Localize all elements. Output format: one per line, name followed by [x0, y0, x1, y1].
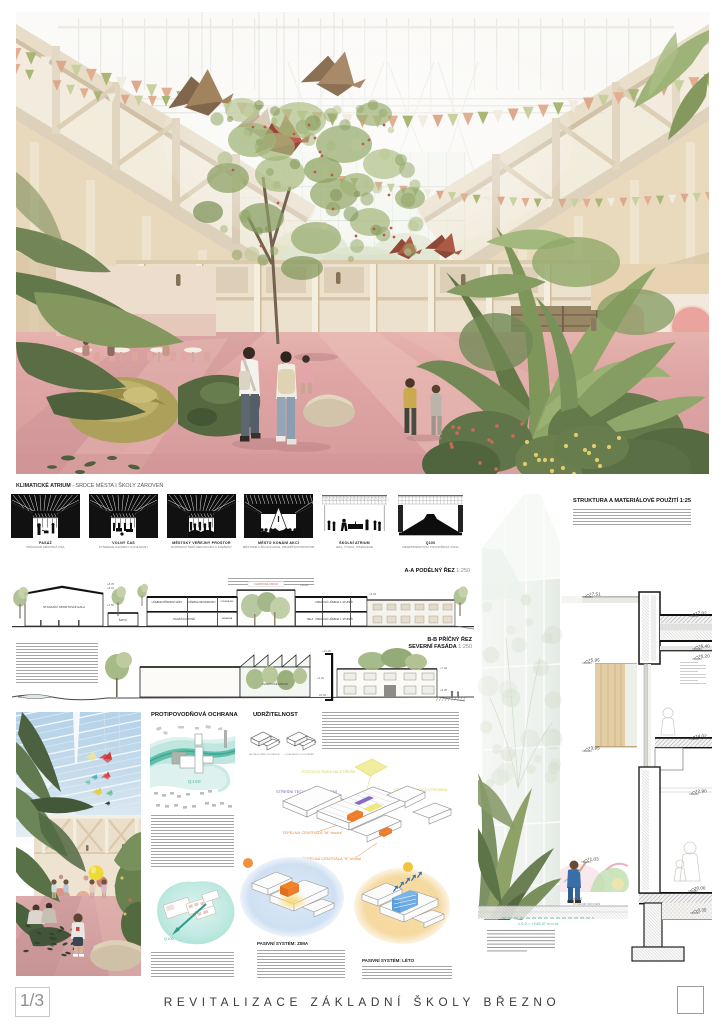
svg-text:+3,95: +3,95	[588, 746, 600, 751]
svg-text:±0,00: ±0,00	[694, 886, 706, 891]
svg-text:+8,04: +8,04	[107, 586, 115, 590]
svg-text:UČEBNA PŘÍRODNÍ VĚDY: UČEBNA PŘÍRODNÍ VĚDY	[152, 601, 183, 604]
svg-text:FOTOVOLTAIKA NA STŘEŠE: FOTOVOLTAIKA NA STŘEŠE	[302, 769, 356, 774]
svg-text:+7,51: +7,51	[589, 592, 601, 597]
svg-text:+7,02: +7,02	[440, 666, 448, 670]
svg-text:+10,18: +10,18	[322, 649, 331, 653]
svg-text:UČEBNA INF.: UČEBNA INF.	[220, 600, 234, 603]
svg-text:+8,04: +8,04	[369, 592, 377, 596]
svg-text:+1,03: +1,03	[587, 857, 599, 862]
svg-text:HLAVNÍ KUCHYNĚ: HLAVNÍ KUCHYNĚ	[173, 618, 195, 621]
svg-text:+2,90: +2,90	[695, 789, 707, 794]
svg-text:Q100: Q100	[164, 936, 175, 941]
svg-text:+3,35: +3,35	[440, 688, 448, 692]
svg-text:≈ 0,0 = +245,37 m n.m.: ≈ 0,0 = +245,37 m n.m.	[518, 921, 559, 926]
svg-text:+4,50: +4,50	[107, 603, 115, 607]
svg-text:VÝCHOZÍ ÚROVEŇ: VÝCHOZÍ ÚROVEŇ	[573, 901, 600, 906]
svg-text:KMENOVÁ UČEBNA 1. STUPEŇ: KMENOVÁ UČEBNA 1. STUPEŇ	[315, 618, 352, 621]
svg-text:±0,00: ±0,00	[319, 693, 326, 697]
svg-text:Q100: Q100	[188, 779, 201, 784]
svg-text:KMENOVÁ UČEBNA 4. STUPEŇ: KMENOVÁ UČEBNA 4. STUPEŇ	[315, 601, 352, 604]
svg-text:+5,95: +5,95	[588, 658, 600, 663]
svg-text:HALA: HALA	[307, 618, 314, 621]
svg-text:STÁVAJÍCÍ SPORTOVNÍ HALA: STÁVAJÍCÍ SPORTOVNÍ HALA	[43, 605, 85, 609]
svg-text:+6,40: +6,40	[698, 644, 710, 649]
svg-text:+10,47: +10,47	[300, 583, 309, 587]
svg-text:+4,02: +4,02	[695, 734, 707, 739]
svg-text:UČEBNA INFORMATIKY: UČEBNA INFORMATIKY	[188, 601, 216, 604]
svg-text:±0,00: ±0,00	[573, 897, 582, 901]
svg-text:KAVÁRNA: KAVÁRNA	[222, 617, 233, 620]
svg-text:TEPELNÁ CENTRÁLA “M” modul: TEPELNÁ CENTRÁLA “M” modul	[282, 830, 342, 835]
svg-text:KLIMATICKÉ ATRIUM: KLIMATICKÉ ATRIUM	[254, 583, 278, 586]
svg-text:-0,35: -0,35	[696, 908, 707, 913]
svg-text:+4,02: +4,02	[317, 676, 325, 680]
svg-text:+6,20: +6,20	[698, 654, 710, 659]
svg-text:+7,02: +7,02	[695, 611, 707, 616]
